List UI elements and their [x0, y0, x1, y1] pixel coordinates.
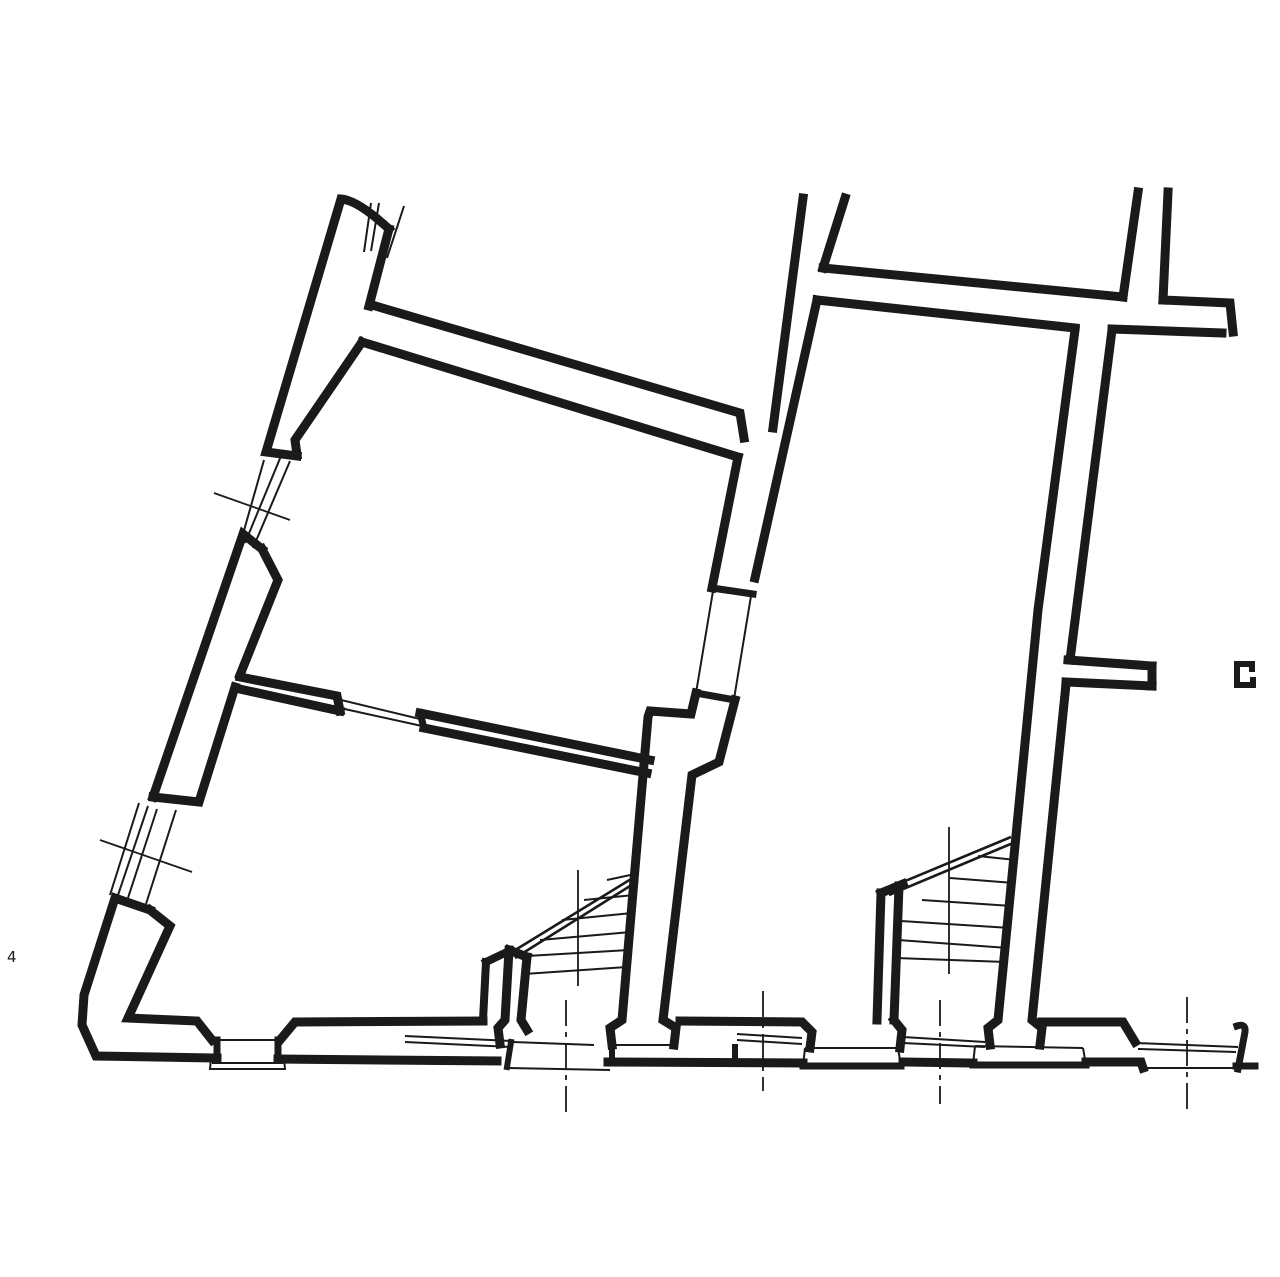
left-wall-inner-splay2-corner-bottom-inner-edge	[128, 910, 212, 1040]
footing2-top-line	[513, 1042, 594, 1045]
walls	[82, 192, 1255, 1069]
middle-door-line-b	[734, 596, 751, 699]
left-stair-wall-inner	[521, 957, 527, 1030]
stub-wall-bottom-edge	[1066, 682, 1152, 686]
right-wall-left-edge-upper	[1123, 192, 1138, 297]
bottom-right-hook-wall	[1237, 1025, 1245, 1069]
stair-plinth-left-edge	[483, 962, 486, 1020]
left-stair-steps	[524, 874, 635, 974]
bottom-inner-edge-4-with-step	[1042, 1022, 1135, 1042]
left-wall-inner-splay	[240, 549, 278, 675]
top-right-wall-bottom-edge-left-part	[817, 300, 1075, 328]
middle-wall-left-edge-at-door	[712, 457, 738, 588]
bottom-outer-edge-5	[1086, 1062, 1143, 1068]
floor-plan-page: 4	[0, 0, 1280, 1277]
left-wall-inner-edge-lower-and-window2-top-jamb	[153, 687, 235, 802]
top-right-wall-bottom-edge-right-part	[1112, 329, 1222, 333]
right-wall-right-edge-lower-a	[1070, 330, 1112, 660]
top-right-wall-top-edge-left-part	[823, 268, 1123, 297]
right-stair-steps	[896, 856, 1016, 962]
window1-axis-slash	[214, 493, 290, 520]
middle-door-line-a	[696, 591, 713, 693]
ledge-double-line-mid	[737, 1034, 802, 1044]
c-shaped-wall-fragment	[1237, 664, 1253, 685]
ledge-double-line-right-stair	[903, 1037, 985, 1047]
right-wall-right-edge-upper	[1163, 192, 1168, 300]
window1-frame-line-b	[253, 461, 290, 548]
stair-stringers	[512, 837, 1013, 958]
left-wall-top-cap-and-outer-edge	[266, 199, 389, 456]
window1-frame-line-a	[245, 456, 281, 543]
floor-plan-svg: 4	[0, 0, 1280, 1277]
middle-door-bottom-jamb	[696, 693, 735, 700]
footing2-base-line	[506, 1068, 610, 1070]
bottom-outer-edge-2	[278, 1059, 497, 1061]
right-wall-right-edge-lower-b	[1032, 684, 1066, 1045]
right-stair-wall-outer	[877, 893, 881, 1020]
left-stair-wall-outer	[498, 950, 509, 1044]
middle-wall-right-edge-upper	[823, 198, 845, 268]
right-stair-wall-inner	[894, 886, 899, 1020]
bottom-outer-edge-3	[608, 1062, 803, 1063]
stub-wall-top-edge	[1068, 660, 1152, 666]
room-wall-c-top-edge-and-end-cap	[372, 305, 744, 438]
left-wall-inner-edge-mid	[295, 342, 362, 455]
bottom-inner-edge-2	[280, 1021, 483, 1040]
left-stair-stringer-double-line	[512, 876, 638, 958]
middle-wall-right-edge-lower-with-jog	[663, 700, 735, 1045]
middle-door-top-jamb	[712, 588, 753, 594]
footing4-right-flare	[894, 1020, 902, 1048]
footing2-left-side	[507, 1042, 511, 1067]
plan-number-label: 4	[7, 948, 17, 966]
bottom-outer-edge-4	[903, 1062, 973, 1063]
